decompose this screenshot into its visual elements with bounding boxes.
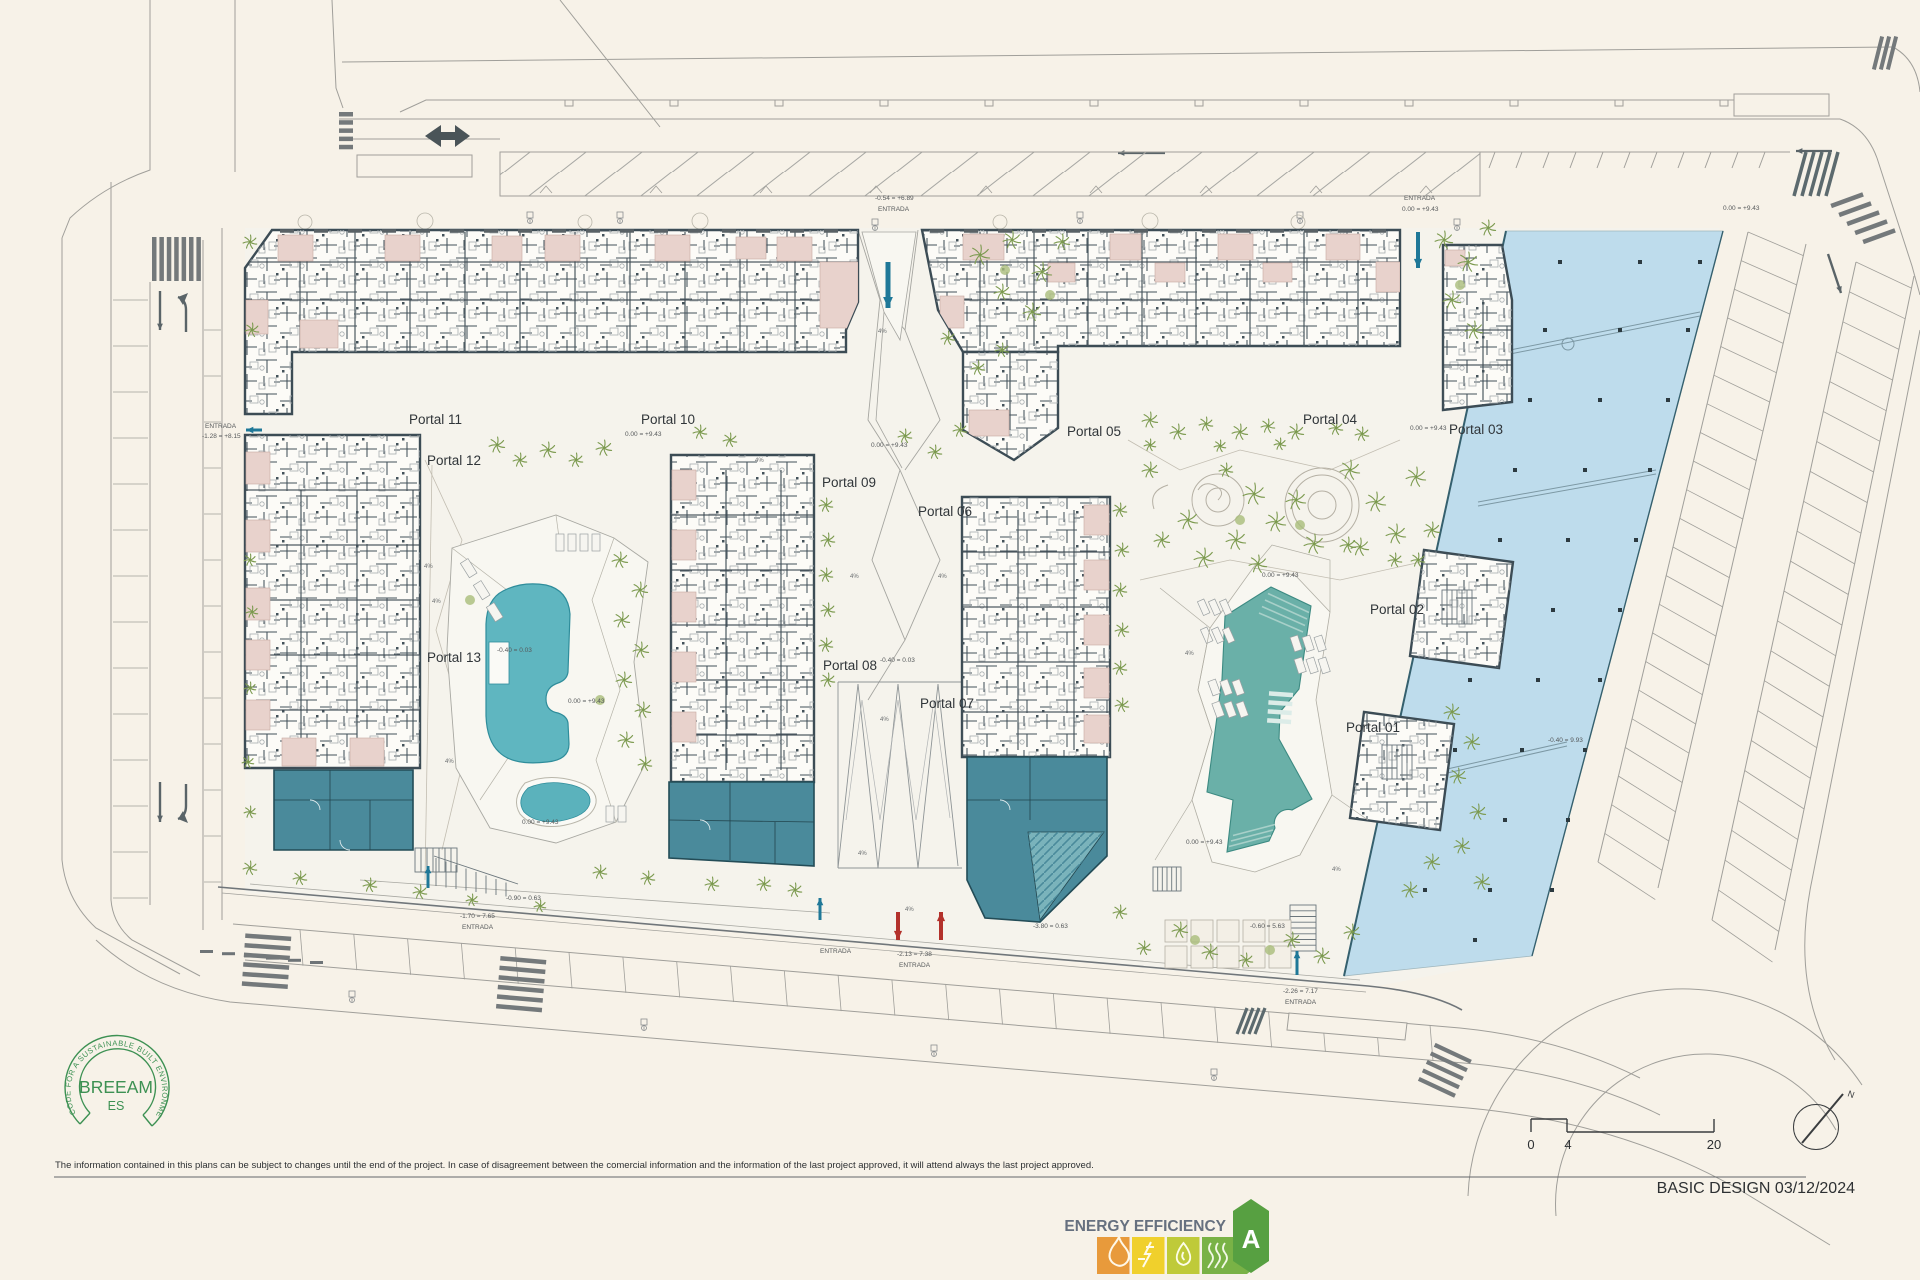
svg-text:4%: 4% [880,717,889,723]
svg-text:Portal 01: Portal 01 [1346,720,1400,735]
svg-text:0.00 = +9.43: 0.00 = +9.43 [871,442,908,449]
svg-text:-2.26 = 7.17: -2.26 = 7.17 [1283,988,1318,995]
svg-text:-0.90 = 0.63: -0.90 = 0.63 [506,895,541,902]
svg-text:The information contained in t: The information contained in this plans … [55,1160,1094,1171]
svg-text:4%: 4% [905,907,914,913]
svg-text:0.00 = +9.43: 0.00 = +9.43 [1262,572,1299,579]
svg-text:-0.40 = 0.03: -0.40 = 0.03 [880,657,915,664]
svg-text:4%: 4% [850,574,859,580]
svg-text:Portal 08: Portal 08 [823,658,877,673]
svg-text:-0.40 = 0.03: -0.40 = 0.03 [497,647,532,654]
svg-text:0.00 = +9.43: 0.00 = +9.43 [568,698,605,705]
svg-text:4%: 4% [1332,867,1341,873]
svg-text:A: A [1242,1224,1261,1254]
svg-text:ENTRADA: ENTRADA [1404,195,1436,202]
svg-text:-0.54 = +6.89: -0.54 = +6.89 [875,195,914,202]
svg-text:Portal 11: Portal 11 [409,412,462,427]
svg-text:4%: 4% [1185,651,1194,657]
svg-text:BASIC DESIGN 03/12/2024: BASIC DESIGN 03/12/2024 [1657,1180,1855,1197]
svg-text:ENTRADA: ENTRADA [1285,999,1317,1006]
svg-text:Portal 05: Portal 05 [1067,424,1121,439]
svg-text:20: 20 [1707,1137,1721,1152]
svg-text:Portal 03: Portal 03 [1449,422,1503,437]
svg-text:-0.40 = 9.93: -0.40 = 9.93 [1548,737,1583,744]
svg-text:ENTRADA: ENTRADA [878,206,910,213]
svg-text:0.00 = +9.43: 0.00 = +9.43 [1402,206,1439,213]
svg-text:Portal 10: Portal 10 [641,412,695,427]
svg-text:-0.60 = 5.63: -0.60 = 5.63 [1250,923,1285,930]
svg-text:4%: 4% [755,458,764,464]
svg-text:ENTRADA: ENTRADA [820,948,852,955]
svg-text:Portal 07: Portal 07 [920,696,974,711]
svg-text:Portal 02: Portal 02 [1370,602,1424,617]
svg-text:4%: 4% [878,329,887,335]
svg-text:ENTRADA: ENTRADA [205,423,237,430]
svg-text:4: 4 [1564,1137,1571,1152]
svg-text:-3.80 = 0.63: -3.80 = 0.63 [1033,923,1068,930]
svg-text:4%: 4% [938,574,947,580]
svg-text:0.00 = +9.43: 0.00 = +9.43 [522,819,559,826]
svg-text:Portal 06: Portal 06 [918,504,972,519]
svg-text:BREEAM: BREEAM [79,1077,153,1097]
svg-text:0: 0 [1527,1137,1534,1152]
svg-text:Portal 04: Portal 04 [1303,412,1358,427]
svg-text:0.00 = +9.43: 0.00 = +9.43 [1723,205,1760,212]
svg-text:0.00 = +9.43: 0.00 = +9.43 [1410,425,1447,432]
svg-text:4%: 4% [432,599,441,605]
svg-text:4%: 4% [445,759,454,765]
svg-text:-1.28 = +8.15: -1.28 = +8.15 [202,433,241,440]
svg-text:Portal 12: Portal 12 [427,453,481,468]
svg-text:ENTRADA: ENTRADA [899,962,931,969]
svg-text:Portal 09: Portal 09 [822,475,876,490]
svg-text:4%: 4% [858,851,867,857]
svg-text:Portal 13: Portal 13 [427,650,481,665]
svg-text:0.00 = +9.43: 0.00 = +9.43 [1186,839,1223,846]
svg-text:4%: 4% [424,564,433,570]
svg-text:ENERGY EFFICIENCY: ENERGY EFFICIENCY [1064,1218,1226,1235]
svg-text:ENTRADA: ENTRADA [462,924,494,931]
svg-text:-2.13 = 7.38: -2.13 = 7.38 [897,951,932,958]
svg-text:-1.70 = 7.65: -1.70 = 7.65 [460,913,495,920]
svg-text:0.00 = +9.43: 0.00 = +9.43 [625,431,662,438]
svg-text:ES: ES [108,1099,125,1113]
